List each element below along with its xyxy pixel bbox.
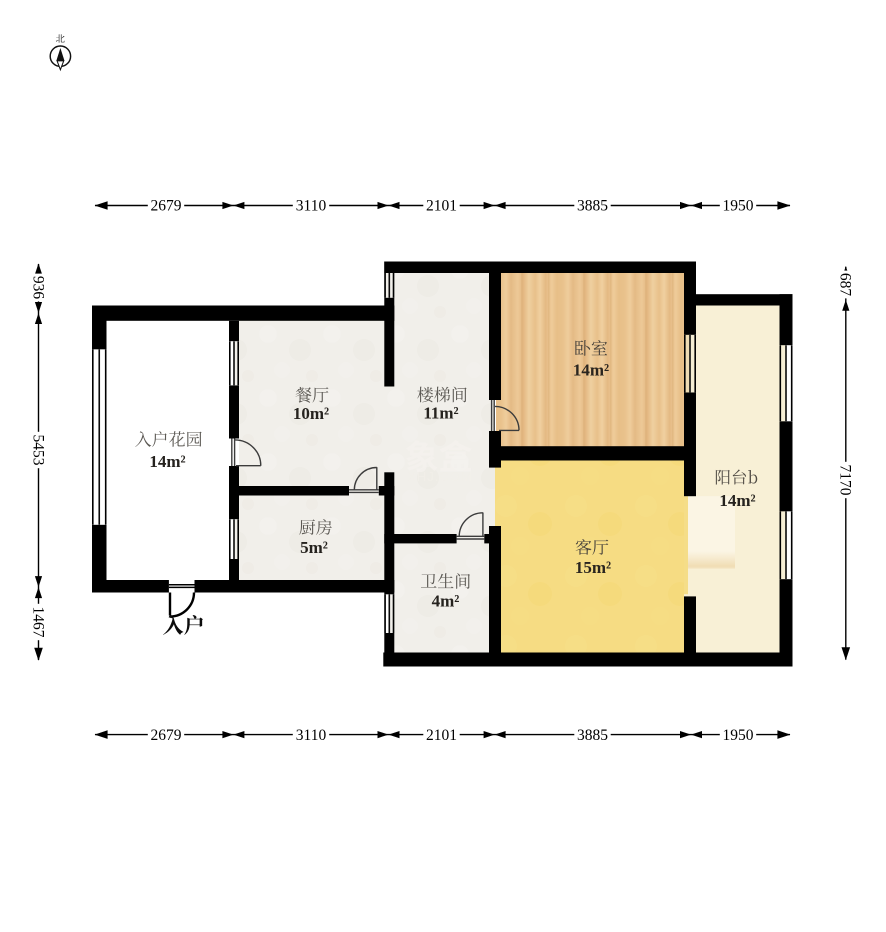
- svg-text:1950: 1950: [723, 198, 754, 215]
- svg-text:3110: 3110: [296, 198, 327, 215]
- svg-text:5453: 5453: [29, 435, 46, 466]
- svg-text:10m²: 10m²: [293, 404, 329, 423]
- svg-text:2679: 2679: [151, 727, 182, 744]
- svg-text:2101: 2101: [426, 198, 457, 215]
- svg-text:14m²: 14m²: [573, 361, 609, 380]
- svg-text:1950: 1950: [723, 727, 754, 744]
- svg-text:936: 936: [29, 276, 46, 300]
- svg-text:7170: 7170: [837, 465, 854, 496]
- svg-text:687: 687: [837, 273, 854, 297]
- svg-text:5m²: 5m²: [300, 538, 328, 557]
- svg-text:14m²: 14m²: [149, 452, 185, 471]
- svg-text:3885: 3885: [577, 198, 608, 215]
- svg-text:14m²: 14m²: [719, 491, 755, 510]
- svg-text:11m²: 11m²: [423, 403, 458, 422]
- svg-text:3110: 3110: [296, 727, 327, 744]
- svg-text:15m²: 15m²: [575, 558, 611, 577]
- svg-text:2101: 2101: [426, 727, 457, 744]
- svg-text:XHJ.COM: XHJ.COM: [407, 469, 473, 484]
- svg-text:3885: 3885: [577, 727, 608, 744]
- svg-text:4m²: 4m²: [432, 592, 460, 611]
- svg-text:2679: 2679: [151, 198, 182, 215]
- svg-text:1467: 1467: [29, 607, 46, 638]
